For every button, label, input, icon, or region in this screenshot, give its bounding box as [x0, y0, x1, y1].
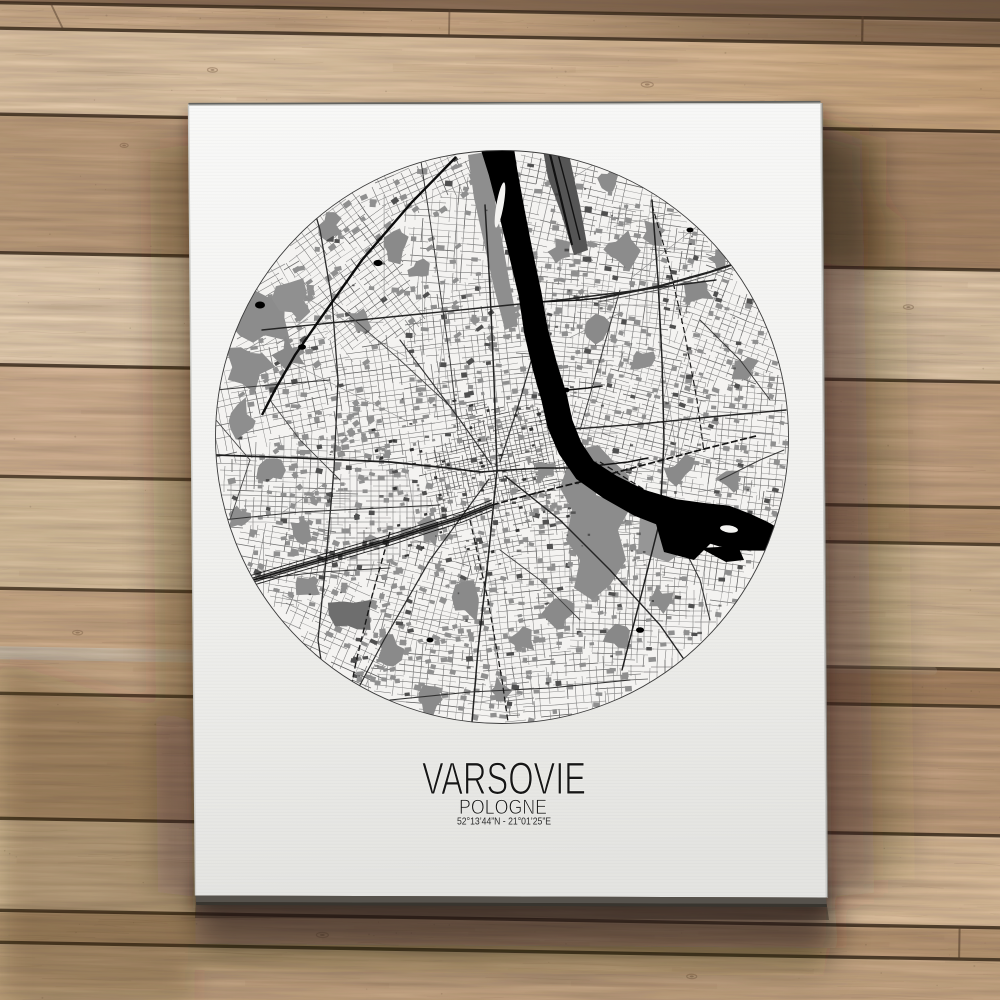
svg-text:52°13’44”N - 21°01’25”E: 52°13’44”N - 21°01’25”E: [457, 816, 551, 828]
